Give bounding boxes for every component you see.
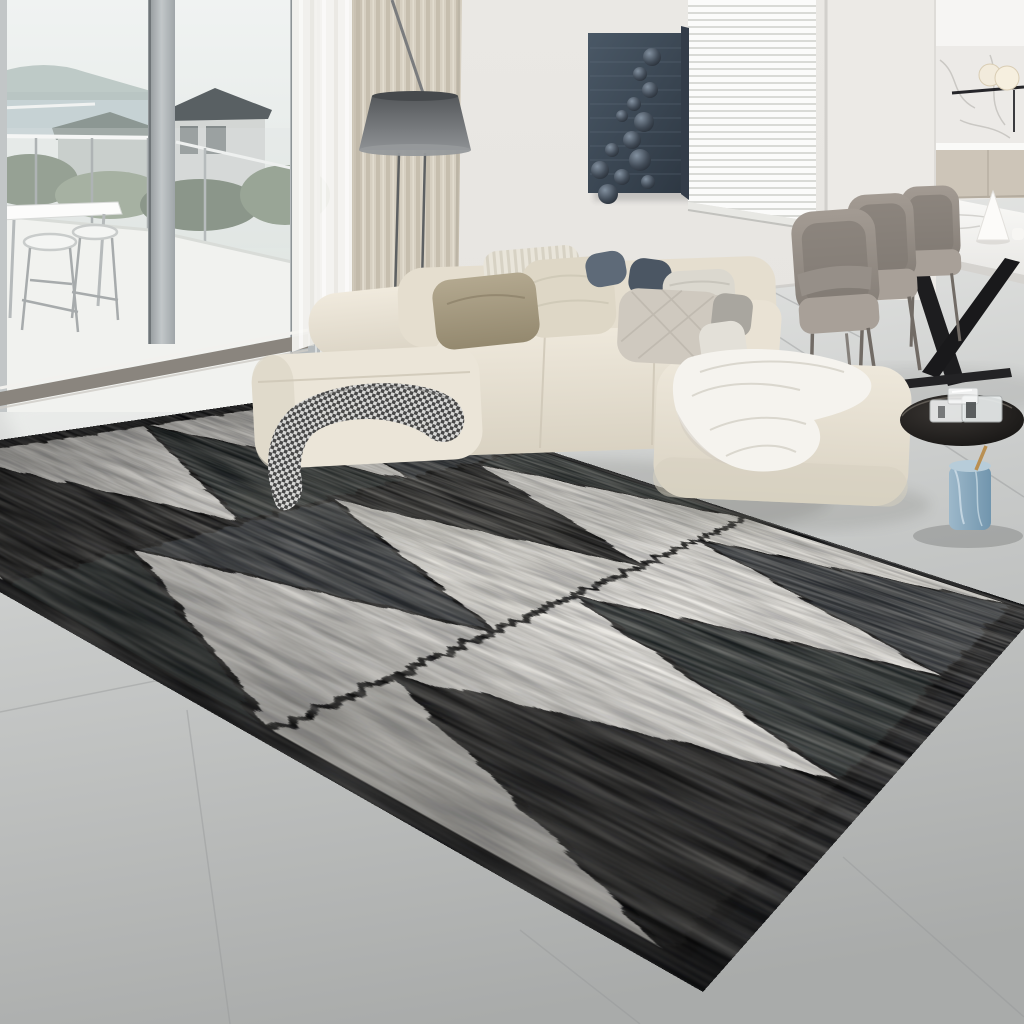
pillow-taupe	[431, 271, 542, 351]
lamp-shade	[359, 96, 471, 150]
furniture-layer	[0, 0, 1024, 1024]
side-table-base	[949, 466, 991, 530]
round-side-table	[900, 388, 1024, 548]
living-room-photo: Bright modern living room: beige L-shape…	[0, 0, 1024, 1024]
